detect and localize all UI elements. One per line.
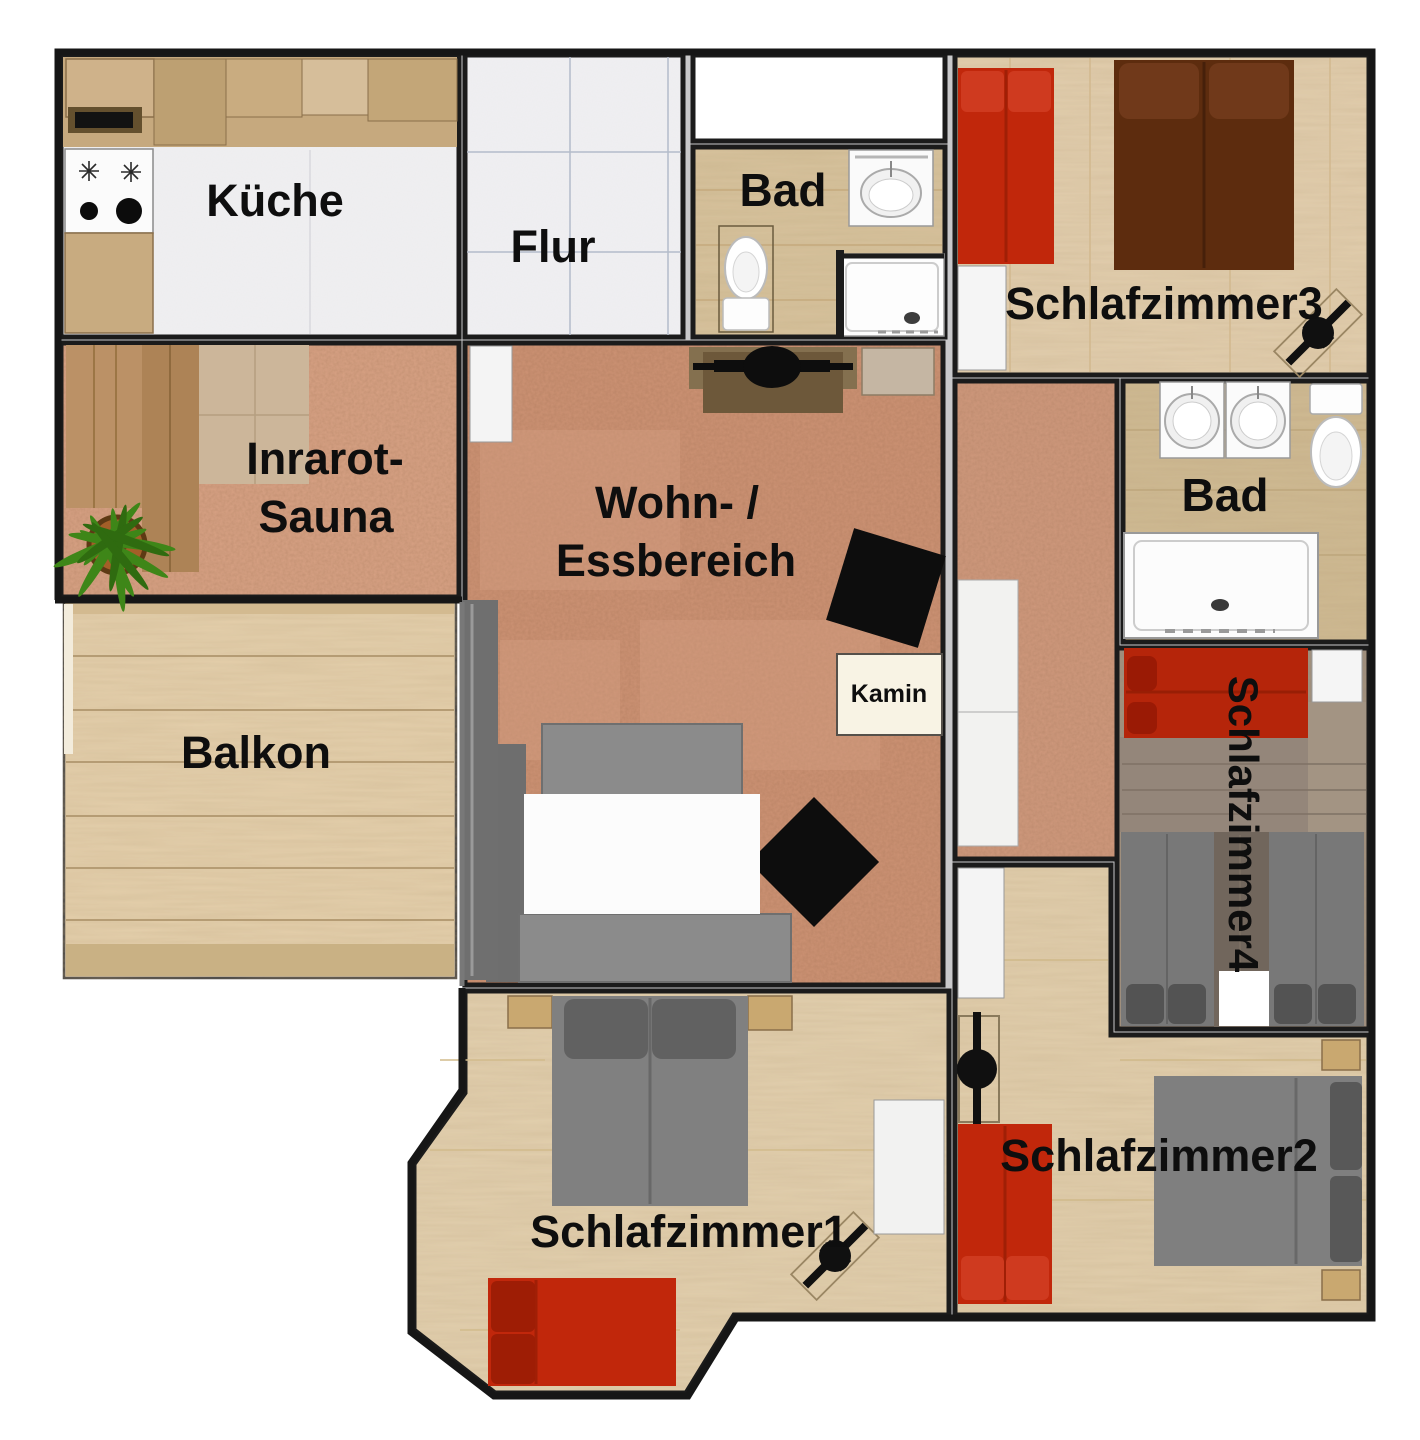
- svg-text:Essbereich: Essbereich: [556, 535, 796, 586]
- svg-text:Kamin: Kamin: [851, 680, 927, 708]
- svg-text:Schlafzimmer3: Schlafzimmer3: [1005, 278, 1323, 329]
- svg-text:Bad: Bad: [740, 164, 827, 216]
- svg-text:Schlafzimmer1: Schlafzimmer1: [530, 1206, 848, 1257]
- svg-text:Inrarot-: Inrarot-: [246, 433, 404, 484]
- svg-text:Bad: Bad: [1182, 469, 1269, 521]
- svg-text:Sauna: Sauna: [258, 491, 394, 542]
- svg-text:Schlafzimmer4: Schlafzimmer4: [1220, 676, 1267, 973]
- svg-text:Wohn- /: Wohn- /: [595, 477, 760, 528]
- svg-text:Balkon: Balkon: [181, 727, 331, 778]
- svg-text:Küche: Küche: [206, 175, 344, 226]
- svg-text:Flur: Flur: [511, 221, 596, 272]
- svg-text:Schlafzimmer2: Schlafzimmer2: [1000, 1130, 1318, 1181]
